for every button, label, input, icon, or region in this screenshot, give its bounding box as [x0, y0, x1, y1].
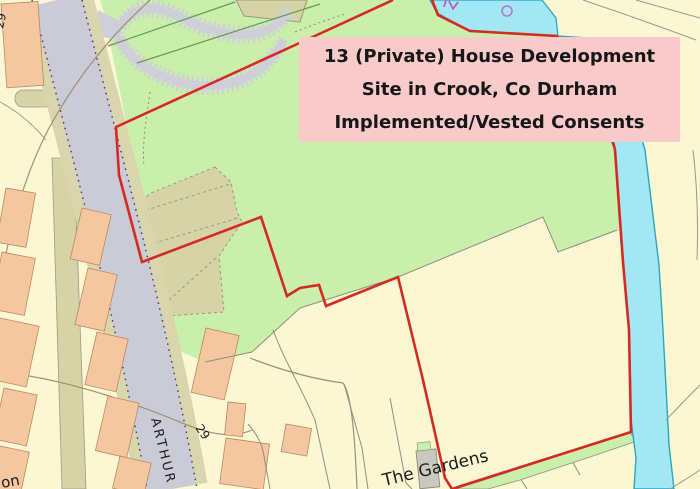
- title-overlay: 13 (Private) House Development Site in C…: [299, 37, 680, 142]
- street-fragment-label: on: [0, 471, 21, 489]
- title-line-1: 13 (Private) House Development: [324, 40, 655, 73]
- map-screenshot: 29 29 ARTHUR on The Gardens 13 (Private)…: [0, 0, 700, 489]
- title-line-2: Site in Crook, Co Durham: [362, 73, 618, 106]
- title-line-3: Implemented/Vested Consents: [334, 106, 644, 139]
